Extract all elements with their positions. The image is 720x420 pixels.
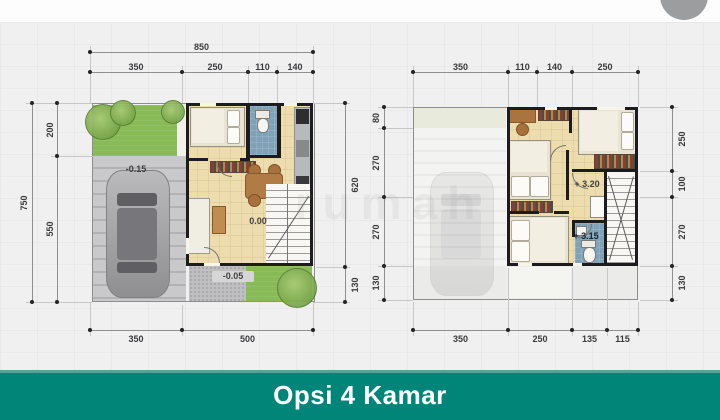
window-gap — [545, 107, 557, 110]
dim-tick — [411, 328, 415, 332]
garden-below-faint — [414, 108, 506, 128]
wall — [569, 107, 572, 133]
dim-tick — [670, 169, 674, 173]
bed-sheet — [511, 142, 547, 172]
dim-label: 350 — [413, 62, 508, 72]
canopy-below — [507, 267, 571, 298]
dim-tick — [605, 328, 609, 332]
dim-tick — [670, 264, 674, 268]
dim-line — [672, 107, 673, 300]
dim-tick — [670, 298, 674, 302]
watermark: rumah — [205, 176, 575, 230]
desk-chair — [516, 123, 529, 136]
banner-title: Opsi 4 Kamar — [273, 380, 447, 413]
dim-label: 270 — [676, 212, 688, 252]
level-label: + 3.15 — [567, 231, 605, 242]
dim-label: 80 — [370, 98, 382, 138]
pillow — [621, 112, 634, 132]
pillow — [511, 241, 530, 262]
dim-tick — [670, 195, 674, 199]
dim-label: 130 — [370, 263, 382, 303]
dim-label: 250 — [572, 62, 638, 72]
dim-label: 115 — [607, 334, 638, 344]
dim-tick — [636, 328, 640, 332]
dim-label: 100 — [676, 164, 688, 204]
dim-tick — [382, 298, 386, 302]
dim-label: 135 — [572, 334, 607, 344]
wall — [572, 220, 605, 223]
desk — [509, 108, 536, 123]
bed-sheet — [580, 111, 618, 151]
dim-tick — [570, 328, 574, 332]
dim-tick — [382, 264, 386, 268]
dim-tick — [382, 105, 386, 109]
option-banner: Opsi 4 Kamar — [0, 373, 720, 420]
wall — [635, 107, 638, 266]
dim-label: 350 — [413, 334, 508, 344]
bench — [594, 154, 638, 169]
dim-label: 250 — [508, 334, 572, 344]
dim-label: 130 — [676, 263, 688, 303]
window-gap — [518, 263, 532, 266]
ext-line — [572, 268, 573, 336]
toilet-icon — [583, 247, 596, 263]
dim-tick — [506, 328, 510, 332]
window-gap — [597, 107, 625, 110]
dim-tick — [382, 126, 386, 130]
dim-label: 110 — [508, 62, 537, 72]
ext-line — [508, 268, 509, 336]
dim-line — [413, 72, 638, 73]
window-gap — [573, 263, 582, 266]
dim-label: 140 — [537, 62, 572, 72]
dim-tick — [670, 105, 674, 109]
floorplan-image: -0.15 0.00 -0.05 850 350 250 110 140 — [0, 0, 720, 420]
ext-line — [607, 268, 608, 336]
pillow — [621, 132, 634, 150]
dim-label: 250 — [676, 119, 688, 159]
